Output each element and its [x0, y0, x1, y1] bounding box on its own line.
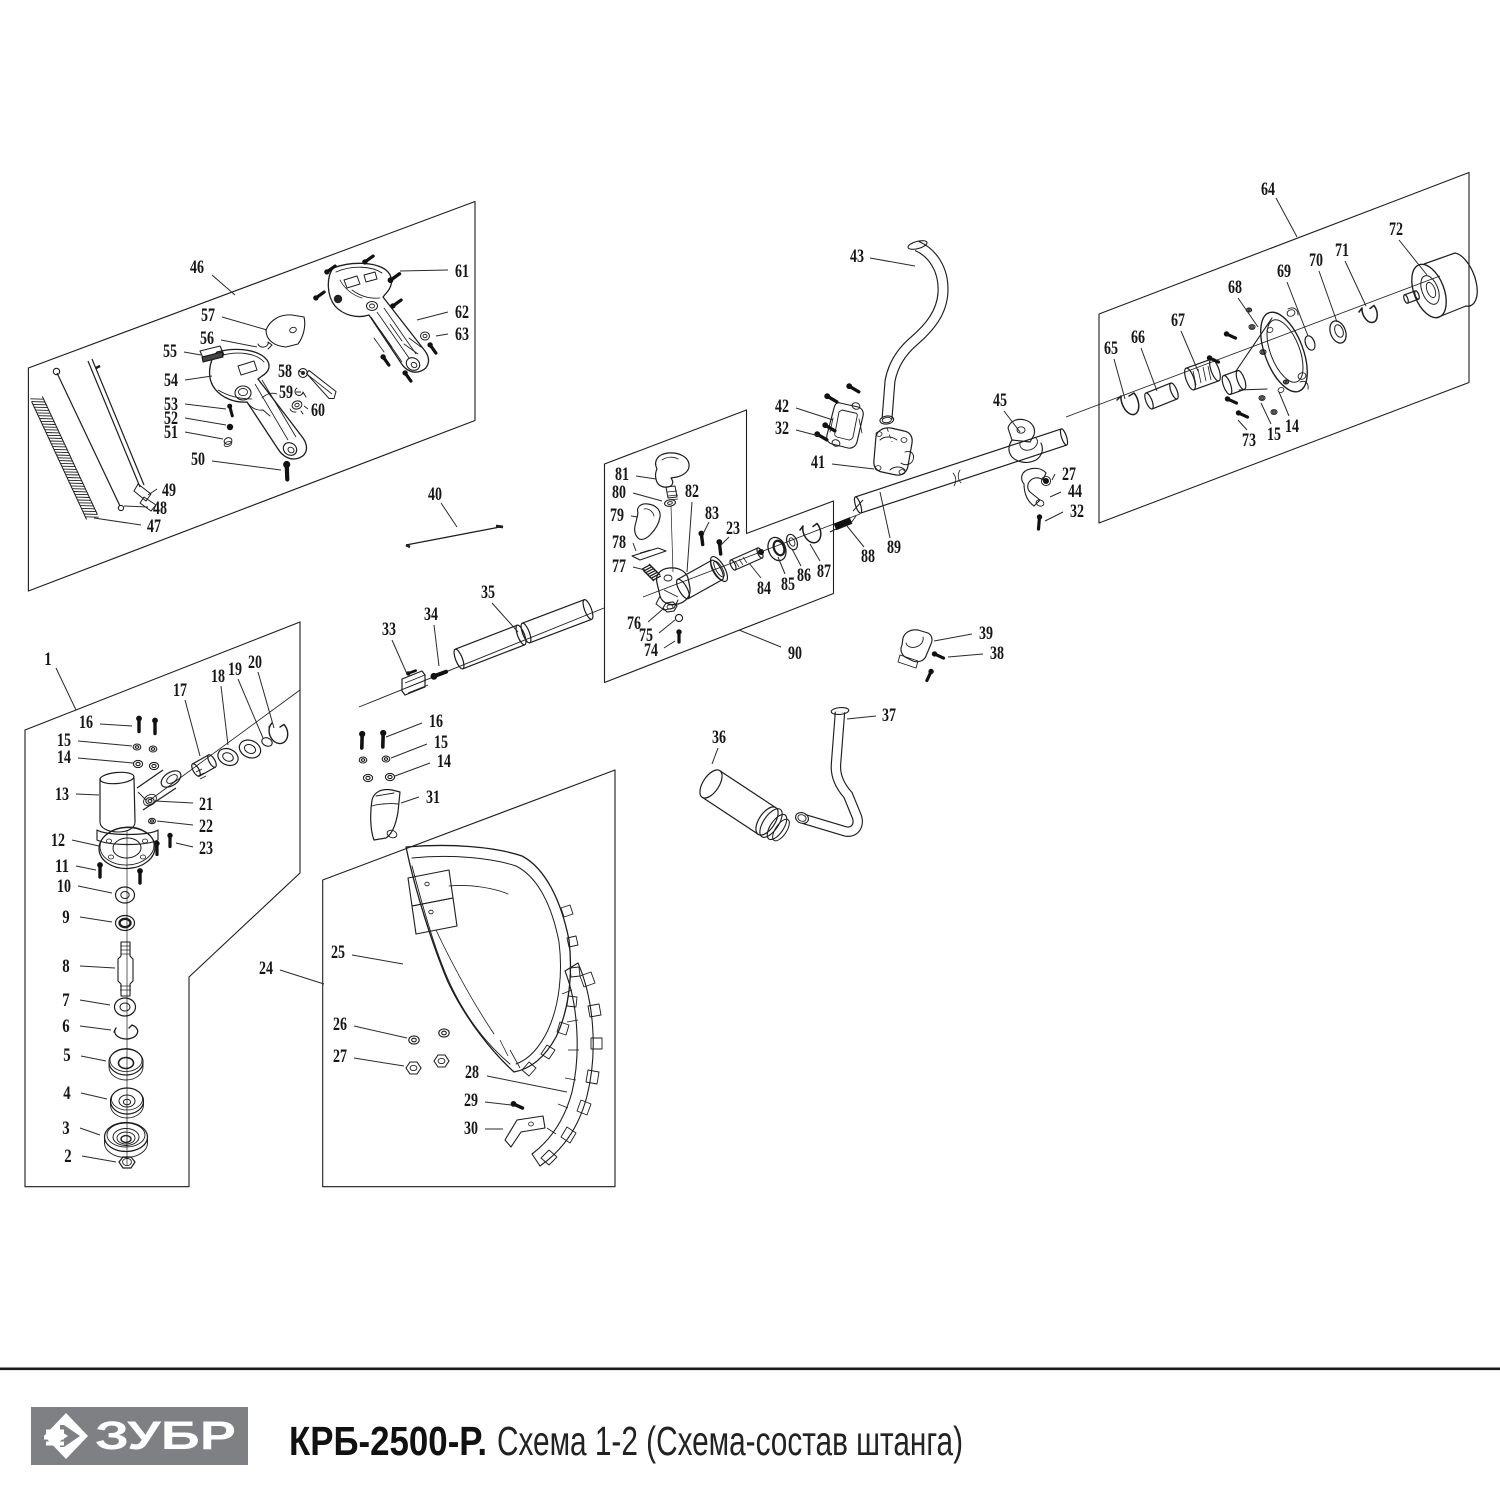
- svg-text:35: 35: [481, 583, 495, 603]
- svg-text:82: 82: [685, 482, 699, 502]
- svg-text:28: 28: [465, 1063, 479, 1083]
- svg-text:32: 32: [1070, 502, 1084, 522]
- svg-text:41: 41: [811, 453, 825, 473]
- svg-text:15: 15: [1267, 425, 1281, 445]
- svg-text:24: 24: [259, 959, 273, 979]
- svg-text:14: 14: [437, 752, 451, 772]
- svg-text:60: 60: [311, 401, 325, 421]
- svg-text:59: 59: [279, 383, 293, 403]
- svg-text:83: 83: [705, 504, 719, 524]
- svg-text:26: 26: [333, 1015, 347, 1035]
- svg-text:71: 71: [1335, 241, 1349, 261]
- svg-text:62: 62: [455, 303, 469, 323]
- svg-text:85: 85: [781, 575, 795, 595]
- svg-text:38: 38: [990, 644, 1004, 664]
- svg-text:23: 23: [726, 519, 740, 539]
- svg-text:11: 11: [55, 857, 69, 877]
- svg-text:79: 79: [610, 506, 624, 526]
- svg-text:36: 36: [712, 728, 726, 748]
- svg-text:6: 6: [62, 1017, 69, 1037]
- svg-text:47: 47: [147, 517, 161, 537]
- svg-text:29: 29: [464, 1091, 478, 1111]
- svg-text:50: 50: [191, 450, 205, 470]
- svg-text:40: 40: [428, 485, 442, 505]
- svg-text:20: 20: [248, 653, 262, 673]
- svg-text:70: 70: [1309, 251, 1323, 271]
- svg-text:23: 23: [199, 839, 213, 859]
- svg-text:КРБ-2500-Р.: КРБ-2500-Р.: [289, 1418, 487, 1464]
- svg-text:42: 42: [775, 397, 789, 417]
- svg-text:3: 3: [62, 1119, 69, 1139]
- svg-text:16: 16: [79, 713, 93, 733]
- svg-text:8: 8: [62, 957, 69, 977]
- svg-text:15: 15: [434, 733, 448, 753]
- svg-text:22: 22: [199, 817, 213, 837]
- svg-text:25: 25: [331, 943, 345, 963]
- svg-text:19: 19: [228, 660, 242, 680]
- svg-text:ЗУБР: ЗУБР: [95, 1414, 236, 1458]
- svg-text:34: 34: [424, 605, 438, 625]
- svg-text:30: 30: [464, 1119, 478, 1139]
- svg-text:4: 4: [63, 1084, 70, 1104]
- svg-text:1: 1: [44, 650, 51, 670]
- svg-text:33: 33: [382, 620, 396, 640]
- svg-text:49: 49: [162, 481, 176, 501]
- svg-text:78: 78: [612, 533, 626, 553]
- svg-text:88: 88: [861, 547, 875, 567]
- svg-text:5: 5: [63, 1046, 70, 1066]
- svg-text:Схема 1-2 (Схема-состав штанга: Схема 1-2 (Схема-состав штанга): [497, 1418, 963, 1464]
- svg-text:7: 7: [62, 991, 69, 1011]
- svg-text:67: 67: [1171, 311, 1185, 331]
- svg-text:10: 10: [57, 877, 71, 897]
- svg-text:58: 58: [278, 362, 292, 382]
- svg-text:46: 46: [190, 258, 204, 278]
- svg-text:21: 21: [199, 795, 213, 815]
- svg-text:39: 39: [979, 624, 993, 644]
- svg-text:72: 72: [1389, 220, 1403, 240]
- svg-text:44: 44: [1068, 482, 1082, 502]
- svg-text:89: 89: [887, 538, 901, 558]
- svg-text:48: 48: [153, 499, 167, 519]
- svg-text:31: 31: [426, 788, 440, 808]
- svg-text:77: 77: [612, 557, 626, 577]
- svg-text:80: 80: [612, 483, 626, 503]
- svg-text:13: 13: [55, 785, 69, 805]
- svg-text:51: 51: [164, 423, 178, 443]
- svg-text:12: 12: [51, 831, 65, 851]
- svg-text:32: 32: [775, 419, 789, 439]
- svg-text:27: 27: [333, 1047, 347, 1067]
- svg-text:87: 87: [817, 562, 831, 582]
- svg-text:56: 56: [200, 329, 214, 349]
- svg-text:37: 37: [882, 706, 896, 726]
- svg-text:69: 69: [1277, 262, 1291, 282]
- svg-text:81: 81: [615, 465, 629, 485]
- svg-text:43: 43: [850, 247, 864, 267]
- svg-text:45: 45: [993, 391, 1007, 411]
- svg-text:9: 9: [62, 908, 69, 928]
- svg-text:73: 73: [1242, 431, 1256, 451]
- svg-text:57: 57: [201, 306, 215, 326]
- svg-text:14: 14: [1285, 417, 1299, 437]
- svg-text:86: 86: [797, 566, 811, 586]
- svg-text:55: 55: [163, 342, 177, 362]
- svg-text:63: 63: [455, 325, 469, 345]
- svg-text:54: 54: [164, 371, 178, 391]
- svg-text:68: 68: [1228, 278, 1242, 298]
- svg-text:64: 64: [1261, 180, 1275, 200]
- svg-text:18: 18: [211, 667, 225, 687]
- svg-text:16: 16: [429, 712, 443, 732]
- svg-text:17: 17: [173, 681, 187, 701]
- svg-text:2: 2: [64, 1147, 71, 1167]
- svg-text:14: 14: [57, 748, 71, 768]
- svg-text:74: 74: [644, 641, 658, 661]
- svg-text:65: 65: [1104, 339, 1118, 359]
- svg-text:84: 84: [757, 579, 771, 599]
- svg-text:90: 90: [788, 644, 802, 664]
- svg-text:61: 61: [455, 262, 469, 282]
- svg-text:66: 66: [1131, 328, 1145, 348]
